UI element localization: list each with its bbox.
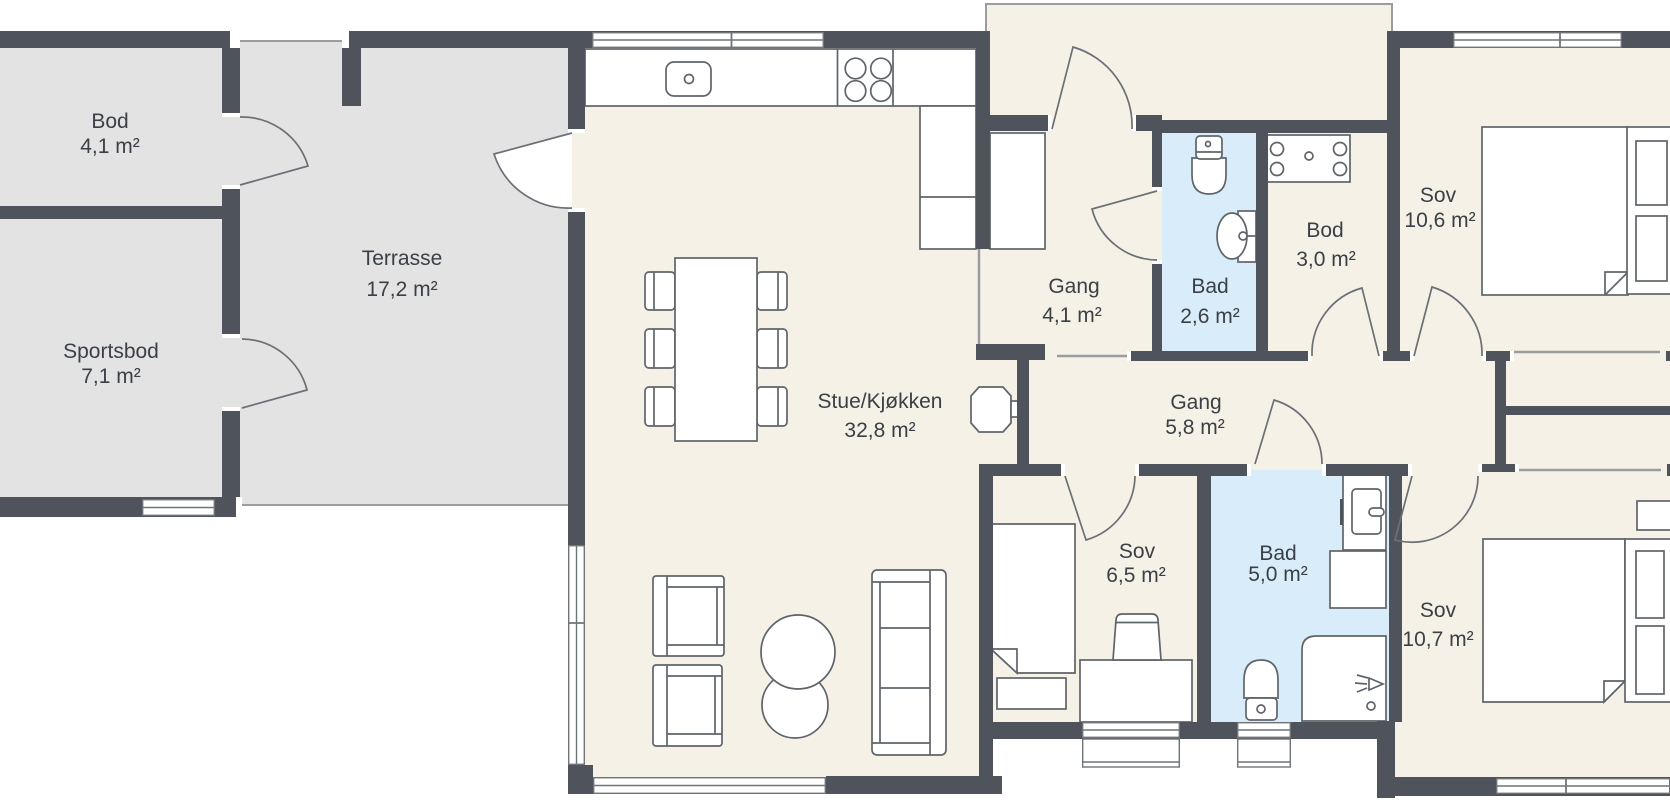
svg-text:3,0 m²: 3,0 m²: [1296, 248, 1356, 271]
svg-text:5,8 m²: 5,8 m²: [1165, 416, 1225, 439]
svg-text:4,1 m²: 4,1 m²: [1042, 304, 1102, 327]
svg-text:5,0 m²: 5,0 m²: [1248, 563, 1308, 586]
svg-text:32,8 m²: 32,8 m²: [844, 419, 915, 442]
svg-text:Bod: Bod: [91, 110, 128, 133]
svg-text:Bod: Bod: [1306, 219, 1343, 242]
svg-text:Stue/Kjøkken: Stue/Kjøkken: [818, 390, 943, 413]
svg-text:Gang: Gang: [1048, 275, 1099, 298]
svg-text:Terrasse: Terrasse: [362, 247, 443, 270]
svg-text:Sov: Sov: [1420, 184, 1457, 207]
svg-text:Sportsbod: Sportsbod: [63, 340, 159, 363]
svg-text:4,1 m²: 4,1 m²: [80, 135, 140, 158]
svg-text:Gang: Gang: [1170, 391, 1221, 414]
svg-text:10,6 m²: 10,6 m²: [1404, 209, 1475, 232]
svg-text:Sov: Sov: [1119, 540, 1156, 563]
svg-text:7,1 m²: 7,1 m²: [81, 365, 141, 388]
svg-text:Sov: Sov: [1420, 599, 1457, 622]
svg-text:17,2 m²: 17,2 m²: [366, 278, 437, 301]
svg-text:10,7 m²: 10,7 m²: [1402, 628, 1473, 651]
svg-text:Bad: Bad: [1259, 542, 1296, 565]
svg-text:Bad: Bad: [1191, 275, 1228, 298]
svg-text:2,6 m²: 2,6 m²: [1180, 305, 1240, 328]
svg-text:6,5 m²: 6,5 m²: [1106, 564, 1166, 587]
